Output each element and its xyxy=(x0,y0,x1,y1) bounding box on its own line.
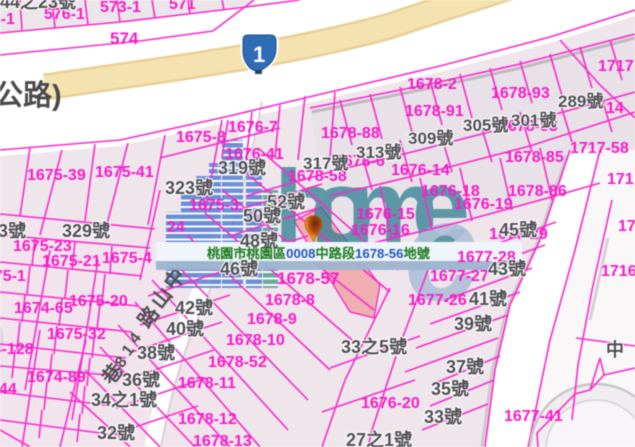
svg-text:1717: 1717 xyxy=(598,58,634,75)
svg-text:17: 17 xyxy=(618,218,635,235)
svg-text:37號: 37號 xyxy=(446,357,484,377)
svg-text:14: 14 xyxy=(606,100,624,117)
svg-text:1677-26: 1677-26 xyxy=(408,292,467,309)
svg-text:36號: 36號 xyxy=(122,370,160,390)
svg-text:33號: 33號 xyxy=(0,221,26,241)
svg-text:33號: 33號 xyxy=(424,407,462,427)
svg-text:1676-20: 1676-20 xyxy=(361,395,420,412)
svg-text:43號: 43號 xyxy=(488,259,526,279)
svg-text:24: 24 xyxy=(167,219,185,236)
svg-text:578-1: 578-1 xyxy=(0,11,15,28)
svg-text:1678-86: 1678-86 xyxy=(508,183,567,200)
svg-text:1678-2: 1678-2 xyxy=(407,76,457,93)
svg-text:1678-10: 1678-10 xyxy=(226,332,285,349)
svg-text:33之5號: 33之5號 xyxy=(341,336,407,357)
svg-text:317號: 317號 xyxy=(303,154,348,173)
svg-text:35號: 35號 xyxy=(431,379,469,399)
svg-text:574: 574 xyxy=(110,29,139,48)
svg-text:38號: 38號 xyxy=(137,343,175,363)
svg-text:45號: 45號 xyxy=(499,220,537,240)
svg-text:289號: 289號 xyxy=(558,92,603,111)
svg-text:171: 171 xyxy=(607,171,634,188)
svg-text:1678-91: 1678-91 xyxy=(405,103,464,120)
svg-text:公路): 公路) xyxy=(0,79,62,112)
svg-text:1675-20: 1675-20 xyxy=(69,293,128,310)
svg-text:1676-14: 1676-14 xyxy=(391,162,450,179)
svg-text:34之1號: 34之1號 xyxy=(91,389,157,410)
svg-text:41號: 41號 xyxy=(469,289,507,309)
svg-text:中: 中 xyxy=(606,339,624,360)
svg-text:1678-9: 1678-9 xyxy=(247,311,297,328)
svg-text:1675-3: 1675-3 xyxy=(189,197,239,214)
svg-text:301號: 301號 xyxy=(511,111,556,130)
svg-text:1677-27: 1677-27 xyxy=(430,268,489,285)
svg-text:1676-7: 1676-7 xyxy=(228,119,278,136)
svg-text:46號: 46號 xyxy=(220,259,258,279)
svg-text:573-1: 573-1 xyxy=(100,0,141,16)
svg-text:1675-8: 1675-8 xyxy=(176,129,226,146)
svg-text:323號: 323號 xyxy=(165,178,213,198)
svg-text:1675-21: 1675-21 xyxy=(42,253,101,270)
svg-text:1677-41: 1677-41 xyxy=(504,408,563,425)
svg-text:1678-85: 1678-85 xyxy=(505,149,564,166)
svg-text:40號: 40號 xyxy=(166,319,204,339)
svg-text:27之1號: 27之1號 xyxy=(346,429,412,447)
svg-text:1675-39: 1675-39 xyxy=(27,167,86,184)
svg-text:319號: 319號 xyxy=(218,158,266,178)
svg-text:1674-89: 1674-89 xyxy=(27,369,86,386)
svg-text:39號: 39號 xyxy=(454,314,492,334)
svg-text:1676-15: 1676-15 xyxy=(356,206,415,223)
svg-text:313號: 313號 xyxy=(356,143,401,162)
svg-text:1716: 1716 xyxy=(601,263,635,280)
svg-text:1674-65: 1674-65 xyxy=(14,300,73,317)
svg-text:1678-57: 1678-57 xyxy=(277,269,339,288)
svg-text:1678-52: 1678-52 xyxy=(208,354,267,371)
svg-text:1676-16: 1676-16 xyxy=(351,222,410,239)
svg-text:571: 571 xyxy=(169,0,196,13)
svg-text:32號: 32號 xyxy=(97,423,135,443)
svg-text:桃園市桃園區0008中路段1678-56地號: 桃園市桃園區0008中路段1678-56地號 xyxy=(207,245,431,261)
svg-text:1674-128: 1674-128 xyxy=(0,341,34,358)
svg-text:1675-32: 1675-32 xyxy=(47,326,106,343)
svg-text:1717-58: 1717-58 xyxy=(570,140,629,157)
svg-text:305號: 305號 xyxy=(463,116,508,135)
svg-text:1675-4: 1675-4 xyxy=(102,250,152,267)
svg-text:44之23號: 44之23號 xyxy=(0,0,76,12)
svg-text:1678-93: 1678-93 xyxy=(491,85,550,102)
svg-text:1: 1 xyxy=(253,42,265,67)
svg-text:1678-13: 1678-13 xyxy=(193,433,252,447)
svg-text:1678-8: 1678-8 xyxy=(265,292,315,309)
svg-text:1675-1: 1675-1 xyxy=(0,268,26,285)
svg-text:50號: 50號 xyxy=(243,206,281,226)
svg-text:e: e xyxy=(0,280,6,397)
svg-text:42號: 42號 xyxy=(175,298,213,318)
svg-text:1674-44: 1674-44 xyxy=(0,381,17,398)
svg-text:1676-19: 1676-19 xyxy=(454,196,513,213)
svg-text:329號: 329號 xyxy=(62,221,110,241)
svg-text:309號: 309號 xyxy=(408,129,453,148)
svg-text:1678-88: 1678-88 xyxy=(321,125,380,142)
svg-text:1675-41: 1675-41 xyxy=(95,164,154,181)
svg-text:1678-12: 1678-12 xyxy=(178,411,237,428)
svg-text:1678-11: 1678-11 xyxy=(178,375,236,392)
